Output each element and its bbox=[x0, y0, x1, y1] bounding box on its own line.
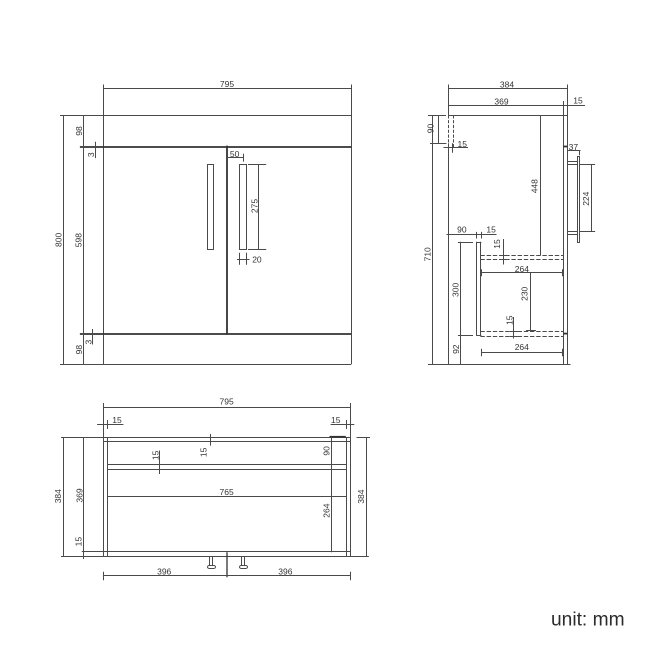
svg-text:710: 710 bbox=[423, 247, 433, 261]
svg-text:275: 275 bbox=[250, 199, 260, 213]
svg-text:795: 795 bbox=[220, 79, 234, 89]
svg-text:20: 20 bbox=[252, 255, 262, 265]
svg-text:15: 15 bbox=[458, 139, 468, 149]
svg-text:15: 15 bbox=[331, 415, 341, 425]
svg-text:15: 15 bbox=[573, 96, 583, 106]
svg-text:15: 15 bbox=[73, 537, 83, 547]
svg-text:90: 90 bbox=[321, 446, 331, 456]
svg-text:369: 369 bbox=[494, 96, 508, 106]
svg-text:3: 3 bbox=[86, 152, 96, 157]
svg-text:98: 98 bbox=[74, 126, 84, 136]
svg-text:3: 3 bbox=[83, 340, 93, 345]
svg-text:384: 384 bbox=[53, 489, 63, 503]
svg-text:92: 92 bbox=[451, 344, 461, 354]
svg-text:15: 15 bbox=[199, 447, 209, 457]
svg-text:384: 384 bbox=[500, 79, 514, 89]
svg-text:264: 264 bbox=[322, 503, 332, 517]
svg-text:448: 448 bbox=[530, 179, 540, 193]
svg-text:15: 15 bbox=[492, 239, 502, 249]
svg-text:98: 98 bbox=[74, 345, 84, 355]
svg-text:300: 300 bbox=[450, 283, 460, 297]
svg-text:90: 90 bbox=[457, 225, 467, 235]
svg-text:unit: mm: unit: mm bbox=[551, 609, 625, 630]
svg-text:15: 15 bbox=[150, 450, 160, 460]
svg-text:230: 230 bbox=[519, 286, 529, 300]
svg-text:37: 37 bbox=[569, 142, 579, 152]
svg-text:765: 765 bbox=[220, 487, 234, 497]
svg-text:15: 15 bbox=[505, 315, 515, 325]
svg-text:396: 396 bbox=[157, 566, 171, 576]
svg-text:396: 396 bbox=[278, 566, 292, 576]
svg-text:50: 50 bbox=[230, 149, 240, 159]
svg-text:369: 369 bbox=[74, 488, 84, 502]
svg-text:384: 384 bbox=[356, 489, 366, 503]
svg-text:795: 795 bbox=[220, 397, 234, 407]
svg-text:800: 800 bbox=[53, 233, 63, 247]
svg-text:224: 224 bbox=[581, 191, 591, 205]
svg-text:598: 598 bbox=[74, 233, 84, 247]
svg-text:264: 264 bbox=[515, 342, 529, 352]
svg-text:15: 15 bbox=[486, 224, 496, 234]
svg-text:15: 15 bbox=[112, 415, 122, 425]
svg-text:264: 264 bbox=[515, 264, 529, 274]
svg-text:90: 90 bbox=[426, 124, 436, 134]
